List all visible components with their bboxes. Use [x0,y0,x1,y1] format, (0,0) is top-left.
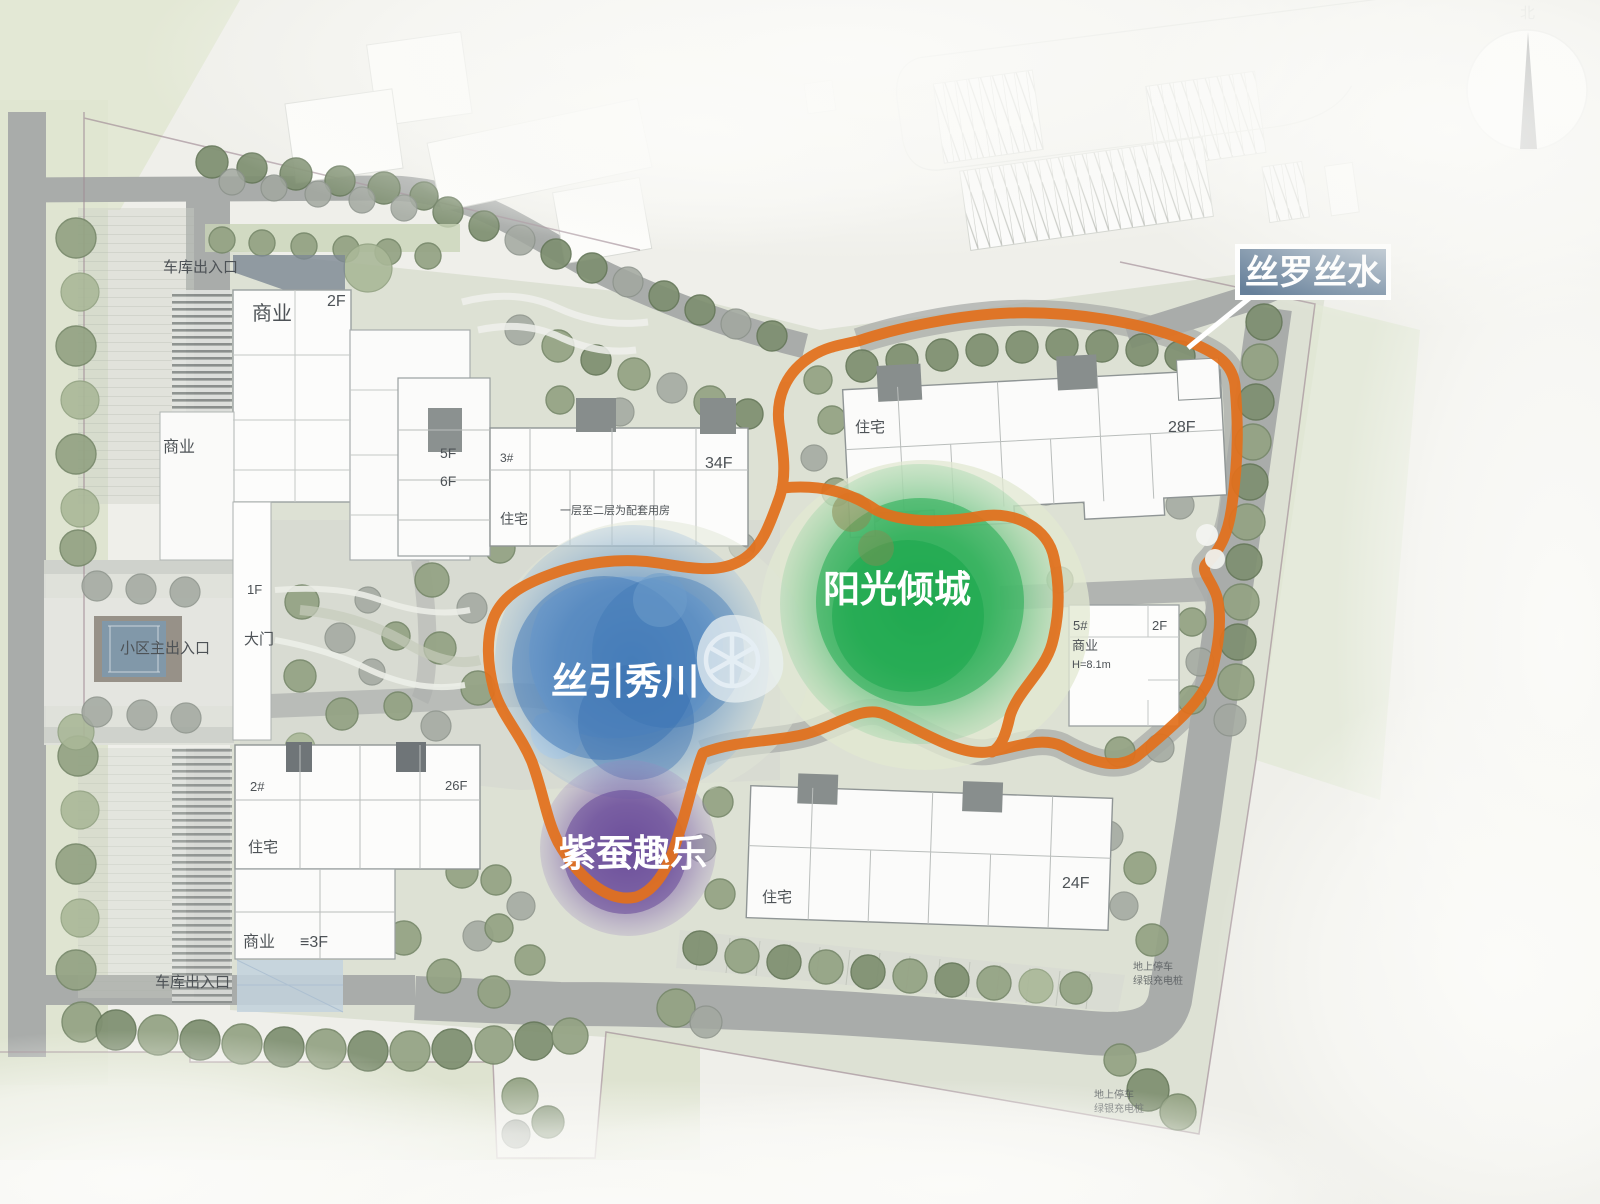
svg-text:车库出入口: 车库出入口 [155,974,230,991]
svg-text:1F: 1F [247,582,262,597]
svg-text:26F: 26F [445,778,467,793]
svg-text:3#: 3# [500,451,514,465]
svg-text:大门: 大门 [244,631,274,648]
svg-text:5#: 5# [1073,618,1088,633]
svg-text:地上停车: 地上停车 [1133,960,1173,973]
svg-text:H=8.1m: H=8.1m [1072,659,1111,671]
svg-text:绿银充电桩: 绿银充电桩 [1133,974,1183,987]
svg-text:住宅: 住宅 [248,839,278,856]
svg-text:丝引秀川: 丝引秀川 [551,661,699,702]
svg-text:车库出入口: 车库出入口 [163,259,238,276]
svg-text:小区主出入口: 小区主出入口 [120,640,210,657]
svg-text:一层至二层为配套用房: 一层至二层为配套用房 [560,504,670,517]
svg-text:住宅: 住宅 [500,511,528,527]
svg-text:28F: 28F [1168,419,1196,436]
svg-text:商业: 商业 [163,438,195,456]
svg-text:商业: 商业 [1072,638,1098,653]
svg-text:住宅: 住宅 [855,419,885,436]
svg-text:24F: 24F [1062,875,1090,892]
svg-text:阳光倾城: 阳光倾城 [823,569,971,610]
svg-text:住宅: 住宅 [762,889,792,906]
svg-text:5F: 5F [440,445,456,461]
svg-text:商业: 商业 [252,302,292,325]
svg-text:2F: 2F [327,293,346,310]
svg-text:6F: 6F [440,473,456,489]
svg-text:商业: 商业 [243,933,275,951]
svg-text:2F: 2F [1152,618,1167,633]
svg-text:34F: 34F [705,455,733,472]
svg-text:紫蚕趣乐: 紫蚕趣乐 [559,833,707,874]
svg-text:≡3F: ≡3F [300,934,328,951]
svg-text:2#: 2# [250,779,265,794]
